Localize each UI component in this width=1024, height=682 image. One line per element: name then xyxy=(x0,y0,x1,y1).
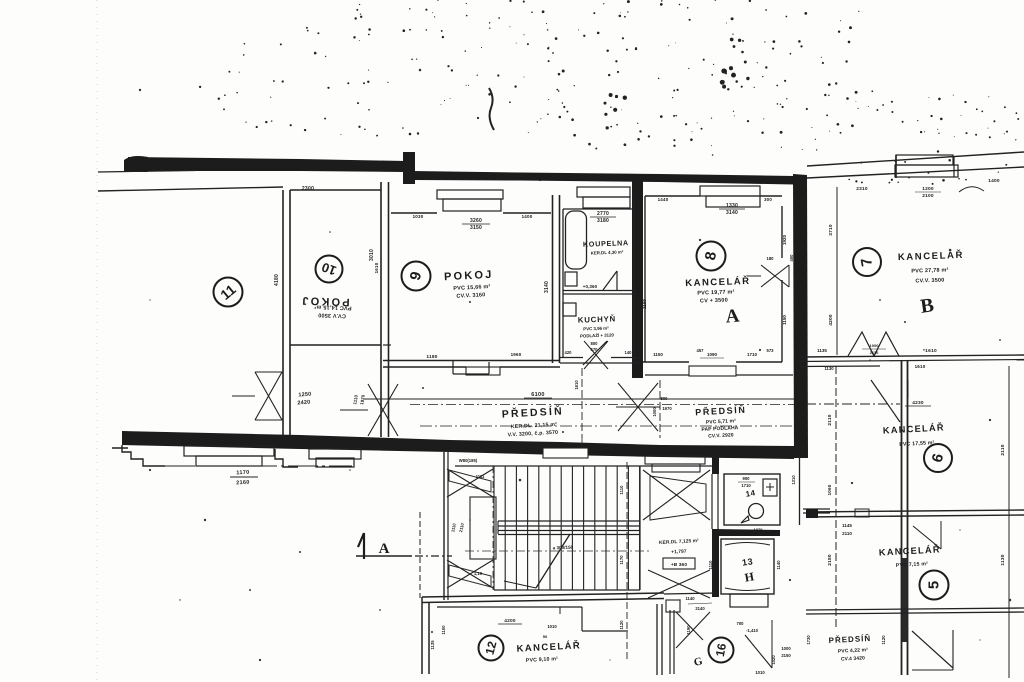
svg-text:KANCELÁŘ: KANCELÁŘ xyxy=(685,275,751,289)
svg-text:2150: 2150 xyxy=(781,653,791,658)
svg-text:1140: 1140 xyxy=(685,596,695,601)
svg-text:3140: 3140 xyxy=(544,281,550,293)
svg-text:1,10: 1,10 xyxy=(474,571,483,576)
svg-text:CV.V. 3500: CV.V. 3500 xyxy=(915,277,944,284)
svg-text:+B 360: +B 360 xyxy=(671,562,687,568)
svg-text:1000: 1000 xyxy=(652,407,657,417)
svg-text:2160: 2160 xyxy=(236,480,250,487)
svg-text:W80(185): W80(185) xyxy=(459,458,478,463)
svg-text:CV.V 3500: CV.V 3500 xyxy=(318,312,346,319)
svg-text:1060: 1060 xyxy=(827,484,832,495)
svg-text:1120: 1120 xyxy=(619,620,624,630)
svg-text:1130: 1130 xyxy=(1000,554,1006,565)
svg-text:1250: 1250 xyxy=(298,392,311,399)
svg-text:2310: 2310 xyxy=(856,186,868,192)
svg-text:4230: 4230 xyxy=(912,400,924,406)
svg-text:2110: 2110 xyxy=(842,531,852,536)
svg-text:4200: 4200 xyxy=(504,618,516,624)
svg-text:4180: 4180 xyxy=(274,274,280,286)
svg-text:1150: 1150 xyxy=(642,299,647,309)
svg-text:+1,797: +1,797 xyxy=(671,549,687,556)
svg-text:2180: 2180 xyxy=(827,554,833,566)
svg-text:A: A xyxy=(379,541,390,557)
svg-text:3150: 3150 xyxy=(470,225,482,231)
svg-text:PVC 14,15 m²: PVC 14,15 m² xyxy=(314,303,351,311)
svg-text:2110: 2110 xyxy=(827,414,833,425)
svg-text:1010: 1010 xyxy=(755,670,765,675)
svg-text:1110: 1110 xyxy=(708,560,713,570)
svg-text:1150: 1150 xyxy=(653,352,663,357)
svg-text:1710: 1710 xyxy=(747,352,758,357)
svg-text:573: 573 xyxy=(767,348,775,353)
svg-text:CV.4 3420: CV.4 3420 xyxy=(841,655,865,662)
svg-text:1170: 1170 xyxy=(236,470,249,477)
svg-text:13: 13 xyxy=(741,556,753,567)
svg-text:3710: 3710 xyxy=(828,224,834,236)
svg-text:5: 5 xyxy=(926,581,943,589)
svg-text:1310: 1310 xyxy=(791,475,796,485)
svg-text:420: 420 xyxy=(565,350,573,355)
svg-text:A: A xyxy=(725,305,741,327)
svg-text:1170: 1170 xyxy=(619,555,624,565)
svg-text:400: 400 xyxy=(789,254,794,262)
svg-text:1200: 1200 xyxy=(922,186,934,192)
svg-text:-1,410: -1,410 xyxy=(746,628,759,633)
svg-text:4200: 4200 xyxy=(828,314,834,326)
svg-text:3260: 3260 xyxy=(470,218,482,224)
svg-text:1130: 1130 xyxy=(824,366,834,371)
svg-text:16: 16 xyxy=(713,642,729,658)
svg-text:1730: 1730 xyxy=(806,635,811,645)
svg-text:2110: 2110 xyxy=(1000,444,1006,455)
svg-text:1960: 1960 xyxy=(511,352,522,357)
svg-text:1140: 1140 xyxy=(776,560,781,570)
svg-text:1180: 1180 xyxy=(426,354,437,360)
svg-text:1090: 1090 xyxy=(707,352,718,357)
svg-text:1150: 1150 xyxy=(782,315,787,325)
svg-text:570: 570 xyxy=(591,347,599,352)
svg-text:+0,360: +0,360 xyxy=(583,284,598,289)
svg-text:3180: 3180 xyxy=(597,218,609,224)
svg-text:1440: 1440 xyxy=(658,197,669,202)
svg-text:1010: 1010 xyxy=(547,624,557,629)
svg-text:1135: 1135 xyxy=(430,640,435,650)
svg-text:910: 910 xyxy=(793,386,798,394)
svg-text:1190: 1190 xyxy=(686,625,691,635)
svg-text:KANCELÁŘ: KANCELÁŘ xyxy=(898,249,964,263)
svg-text:14: 14 xyxy=(745,488,756,499)
svg-text:1710: 1710 xyxy=(741,483,751,488)
svg-text:a 300/150: a 300/150 xyxy=(553,545,574,551)
svg-text:3010: 3010 xyxy=(369,249,375,261)
svg-text:700: 700 xyxy=(737,621,745,626)
svg-text:457: 457 xyxy=(697,348,705,353)
svg-text:1610: 1610 xyxy=(374,262,379,273)
svg-text:1120: 1120 xyxy=(881,635,886,645)
svg-text:800: 800 xyxy=(591,341,599,346)
svg-text:2420: 2420 xyxy=(297,400,310,407)
svg-text:KUCHYŇ: KUCHYŇ xyxy=(578,314,616,324)
svg-text:PVC 19,77 m²: PVC 19,77 m² xyxy=(697,288,734,296)
svg-text:PVC 3,96 m²: PVC 3,96 m² xyxy=(583,326,609,332)
svg-text:1135: 1135 xyxy=(817,348,827,353)
svg-text:2770: 2770 xyxy=(597,211,609,217)
svg-text:1000: 1000 xyxy=(781,646,791,651)
svg-text:50: 50 xyxy=(543,634,548,639)
svg-text:6100: 6100 xyxy=(531,392,544,398)
svg-text:CV + 3500: CV + 3500 xyxy=(700,298,728,305)
svg-text:1970: 1970 xyxy=(662,406,672,411)
svg-text:900: 900 xyxy=(743,476,751,481)
svg-text:1000: 1000 xyxy=(870,343,880,348)
svg-text:1610: 1610 xyxy=(915,364,926,369)
svg-text:2100: 2100 xyxy=(922,193,934,199)
svg-text:180: 180 xyxy=(767,256,775,261)
svg-text:1030: 1030 xyxy=(413,214,424,219)
svg-text:*1610: *1610 xyxy=(923,348,937,354)
svg-text:PVC 27,78 m²: PVC 27,78 m² xyxy=(911,266,948,274)
svg-text:1111: 1111 xyxy=(476,474,485,479)
svg-text:1110: 1110 xyxy=(619,485,624,495)
svg-text:1400: 1400 xyxy=(522,214,533,219)
svg-text:140: 140 xyxy=(625,350,633,355)
svg-text:1330: 1330 xyxy=(726,203,738,209)
svg-text:1970: 1970 xyxy=(754,527,764,532)
svg-text:1610: 1610 xyxy=(574,380,579,390)
svg-text:1145: 1145 xyxy=(842,523,852,528)
svg-text:300: 300 xyxy=(764,197,772,202)
svg-text:1920: 1920 xyxy=(782,234,787,245)
svg-text:1020: 1020 xyxy=(771,655,776,665)
svg-text:3140: 3140 xyxy=(726,210,738,216)
svg-text:2300: 2300 xyxy=(302,186,314,192)
svg-text:800: 800 xyxy=(661,396,669,401)
svg-text:2110: 2110 xyxy=(870,350,879,355)
svg-text:KOUPELNA: KOUPELNA xyxy=(583,238,629,249)
svg-text:1400: 1400 xyxy=(988,178,1000,184)
svg-text:2140: 2140 xyxy=(695,606,705,611)
svg-text:1100: 1100 xyxy=(441,625,446,635)
